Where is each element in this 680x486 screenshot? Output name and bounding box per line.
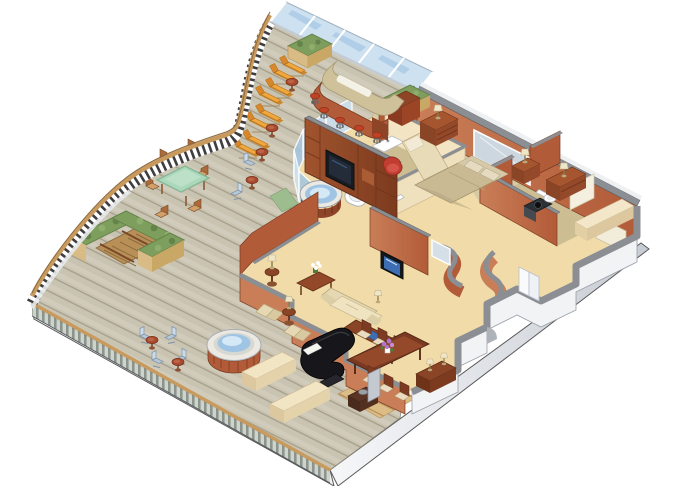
decorative-bowl [359,389,368,394]
suite-floorplan-illustration [0,0,680,486]
leaning-mirror-panel [368,368,380,402]
red-armchair [383,157,402,175]
wall-buttress [487,327,497,344]
floorplan-svg [0,0,680,486]
